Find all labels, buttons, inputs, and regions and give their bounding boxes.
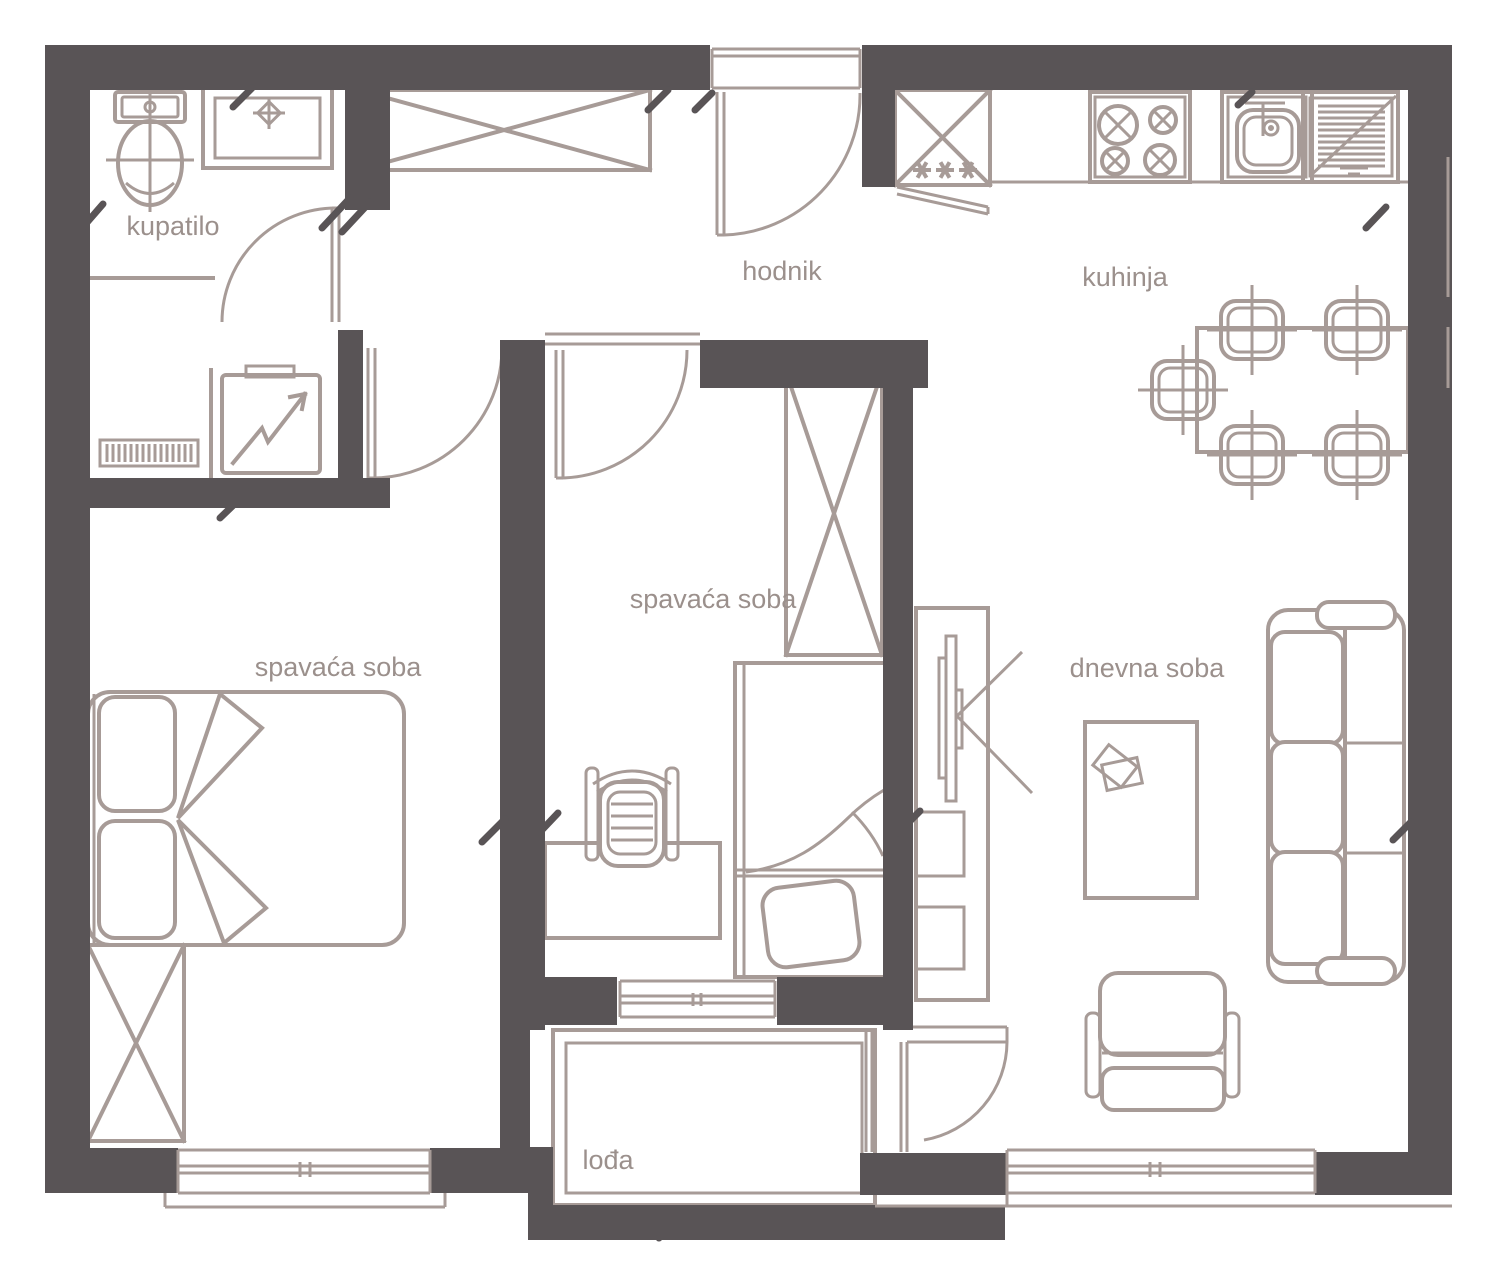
armchair-icon [1086,973,1239,1110]
seat-cushion [1271,852,1343,964]
room-label-bathroom: kupatilo [126,211,219,241]
floor-plan: kupatilo hodnik kuhinja spavaća soba spa… [0,0,1507,1261]
room-label-living-room: dnevna soba [1070,653,1226,683]
floor-plan-drawing: kupatilo hodnik kuhinja spavaća soba spa… [0,0,1507,1261]
armrest [1317,958,1395,984]
armrest [1317,602,1395,628]
pillow-icon [760,879,861,970]
pillow-icon [99,821,175,938]
seat-cushion [1102,1068,1224,1110]
room-label-bedroom-2: spavaća soba [630,584,798,614]
room-label-bedroom-1: spavaća soba [255,652,423,682]
room-label-kitchen: kuhinja [1082,262,1169,292]
room-label-hallway: hodnik [742,256,822,286]
pillow-icon [99,697,175,811]
room-label-loggia: lođa [582,1145,634,1175]
seat-cushion [1271,742,1343,854]
seat-cushion [1271,632,1343,744]
